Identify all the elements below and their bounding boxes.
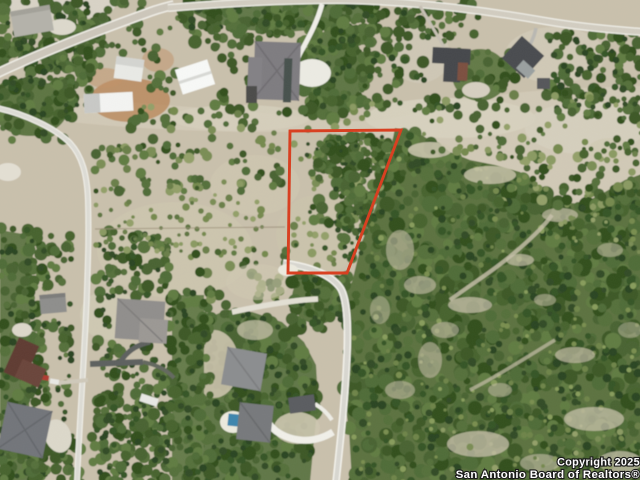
- svg-text:Copyright 2025: Copyright 2025: [557, 457, 640, 469]
- svg-text:San Antonio Board of Realtors®: San Antonio Board of Realtors®: [456, 469, 640, 480]
